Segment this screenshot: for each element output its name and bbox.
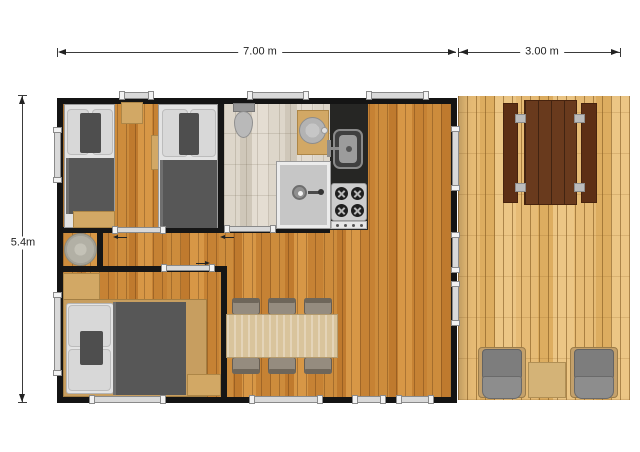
single-bed-left bbox=[64, 104, 115, 228]
drain-center bbox=[298, 191, 303, 196]
deck-armchair-left bbox=[478, 347, 526, 398]
bed-cushion bbox=[80, 113, 101, 153]
single-bed-right bbox=[158, 104, 218, 228]
deck-armchair-right bbox=[570, 347, 618, 398]
nightstand bbox=[121, 102, 143, 124]
sliding-door-bottom-panel bbox=[397, 396, 433, 403]
basin-faucet bbox=[321, 127, 328, 134]
bed-blanket bbox=[160, 160, 217, 228]
window-top-living bbox=[367, 92, 428, 99]
deck-side-table bbox=[528, 362, 566, 398]
foot-bench bbox=[73, 211, 115, 228]
dimension-arrow bbox=[448, 49, 456, 55]
table-bracket bbox=[515, 183, 526, 192]
window-left-master-bedroom bbox=[54, 293, 61, 375]
dimension-arrow bbox=[19, 394, 25, 402]
nightstand bbox=[187, 374, 221, 396]
dining-chair bbox=[232, 357, 260, 374]
dimension-tick bbox=[620, 48, 621, 57]
building-depth-label: 5.4m bbox=[6, 237, 40, 250]
terrace-width-label: 3.00 m bbox=[520, 46, 564, 59]
stove-knob bbox=[352, 224, 355, 227]
bed-cushion bbox=[179, 113, 199, 155]
floor-plan-canvas: 7.00 m 3.00 m 5.4m bbox=[0, 0, 640, 452]
door-slide-arrow bbox=[196, 263, 206, 264]
sliding-door-deck-panel bbox=[452, 233, 459, 272]
window-top-bathroom bbox=[248, 92, 308, 99]
sliding-door-bathroom bbox=[225, 226, 275, 232]
dimension-tick bbox=[18, 402, 27, 403]
shower bbox=[277, 162, 330, 228]
stove-burner bbox=[351, 187, 364, 200]
table-bracket bbox=[515, 114, 526, 123]
door-slide-arrow bbox=[117, 237, 127, 238]
door-slide-arrow bbox=[224, 237, 234, 238]
dimension-arrow bbox=[19, 96, 25, 104]
window-right-kitchen bbox=[452, 127, 459, 190]
bed-blanket bbox=[66, 158, 114, 214]
armchair-seat bbox=[482, 376, 522, 399]
dining-chair bbox=[304, 357, 332, 374]
sliding-door-master-bedroom bbox=[162, 265, 214, 271]
bed-cushion bbox=[80, 331, 103, 365]
sliding-door-deck-panel bbox=[452, 282, 459, 325]
window-top-bedroom bbox=[120, 92, 153, 99]
stove-knob bbox=[336, 224, 339, 227]
stove-knob bbox=[360, 224, 363, 227]
dining-chair bbox=[268, 357, 296, 374]
sliding-door-twin-bedroom bbox=[113, 227, 165, 233]
dining-chair bbox=[232, 298, 260, 315]
stove-burner bbox=[335, 187, 348, 200]
dining-table bbox=[226, 314, 338, 358]
stove-knob-strip bbox=[331, 221, 367, 229]
stove-burner bbox=[335, 204, 348, 217]
dining-chair bbox=[304, 298, 332, 315]
window-bottom-master bbox=[90, 396, 165, 403]
window-bottom-living bbox=[250, 396, 322, 403]
table-bracket bbox=[574, 183, 585, 192]
sliding-door-bottom-panel bbox=[353, 396, 385, 403]
dimension-arrow bbox=[611, 49, 619, 55]
armchair-seat bbox=[574, 376, 614, 399]
dining-chair bbox=[268, 298, 296, 315]
stove-knob bbox=[344, 224, 347, 227]
stove bbox=[331, 183, 367, 221]
sink-faucet-spout bbox=[330, 147, 339, 150]
sink-drain bbox=[346, 146, 352, 152]
dimension-arrow bbox=[58, 49, 66, 55]
building-width-label: 7.00 m bbox=[238, 46, 282, 59]
dimension-tick bbox=[458, 48, 459, 57]
double-bed bbox=[63, 299, 207, 397]
wall-bathroom-left bbox=[218, 104, 224, 227]
picnic-table bbox=[524, 100, 577, 205]
window-left-twin-bedroom bbox=[54, 128, 61, 182]
stove-burner bbox=[351, 204, 364, 217]
round-side-table bbox=[64, 233, 97, 266]
table-bracket bbox=[574, 114, 585, 123]
shower-handle-knob bbox=[318, 189, 324, 195]
dimension-arrow bbox=[460, 49, 468, 55]
bed-blanket bbox=[113, 302, 186, 395]
